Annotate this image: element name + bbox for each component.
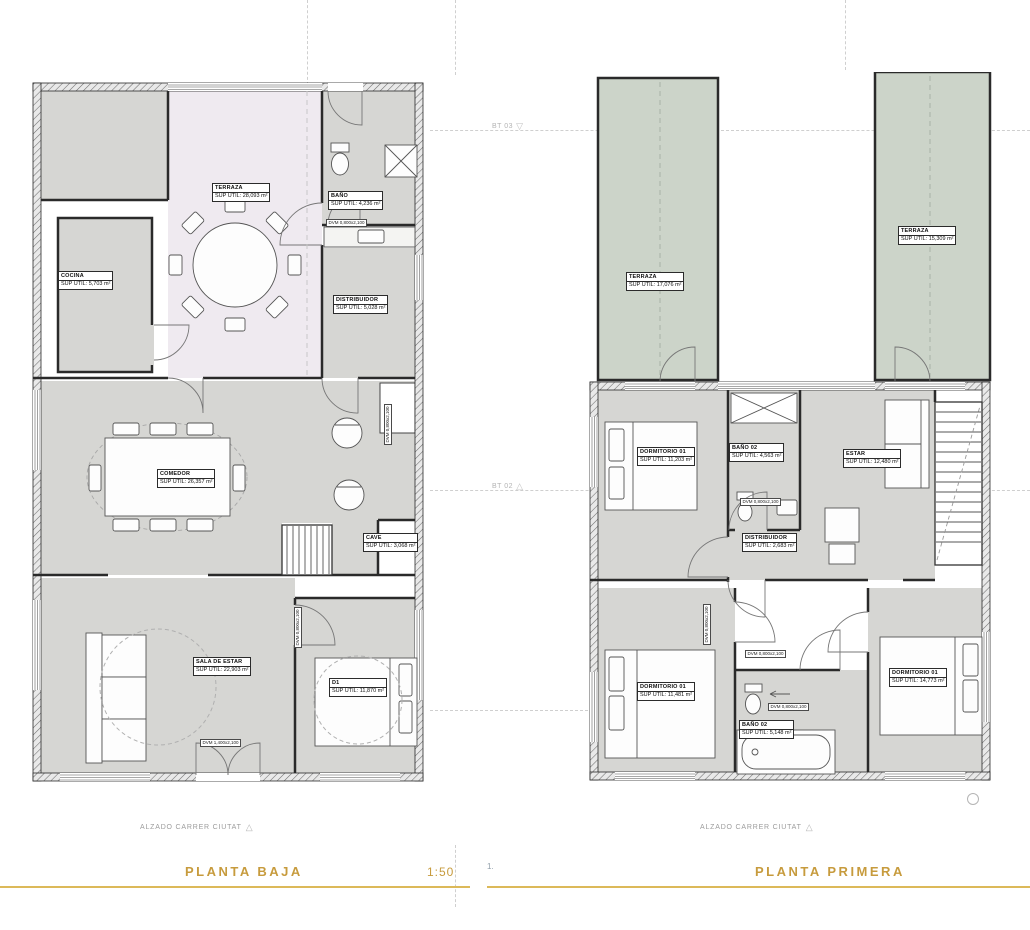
room-area: SUP ÚTIL: 4,236 m²: [329, 201, 382, 209]
room-name: BAÑO 02: [740, 721, 793, 730]
room-label-distribuidor-p1: DISTRIBUIDOR SUP ÚTIL: 2,683 m²: [742, 533, 797, 552]
room-area: SUP ÚTIL: 5,703 m²: [59, 281, 112, 289]
construction-line: [430, 710, 588, 711]
plan-title-planta-baja: PLANTA BAJA: [185, 864, 303, 879]
room-area: SUP ÚTIL: 3,068 m²: [364, 543, 417, 551]
room-area: SUP ÚTIL: 15,309 m²: [899, 236, 955, 244]
room-name: D1: [330, 679, 386, 688]
alzado-annotation-right: ALZADO CARRER CIUTAT △: [700, 822, 813, 833]
room-label-cave: CAVE SUP ÚTIL: 3,068 m²: [363, 533, 418, 552]
stairs: [282, 525, 332, 575]
toilet: [745, 684, 762, 714]
room-label-d1: D1 SUP ÚTIL: 11,870 m²: [329, 678, 387, 697]
construction-line: [455, 0, 456, 75]
room-name: CAVE: [364, 534, 417, 543]
room-label-cocina: COCINA SUP ÚTIL: 5,703 m²: [58, 271, 113, 290]
door-tag: DVM 0,800x2,100: [384, 404, 392, 445]
door-tag: DVM 1,400x2,100: [200, 739, 241, 747]
room-label-comedor: COMEDOR SUP ÚTIL: 26,357 m²: [157, 469, 215, 488]
room-label-terraza-2: TERRAZA SUP ÚTIL: 15,309 m²: [898, 226, 956, 245]
room-label-terraza: TERRAZA SUP ÚTIL: 28,093 m²: [212, 183, 270, 202]
sheet-index: 1.: [487, 862, 494, 871]
room-area: SUP ÚTIL: 5,148 m²: [740, 730, 793, 738]
room-area: SUP ÚTIL: 5,028 m²: [334, 305, 387, 313]
triangle-up-icon: △: [516, 481, 523, 492]
cocina-door-gap: [149, 325, 154, 365]
room-area: SUP ÚTIL: 11,481 m²: [638, 692, 694, 700]
door-tag: DVM 0,800x2,100: [294, 607, 302, 648]
room-area: SUP ÚTIL: 22,903 m²: [194, 667, 250, 675]
door-tag: DVM 0,800x2,100: [326, 219, 367, 227]
room-label-terraza-1: TERRAZA SUP ÚTIL: 17,076 m²: [626, 272, 684, 291]
room-area: SUP ÚTIL: 12,480 m²: [844, 459, 900, 467]
alzado-label: ALZADO CARRER CIUTAT: [700, 824, 802, 831]
room-name: COCINA: [59, 272, 112, 281]
room-area: SUP ÚTIL: 28,093 m²: [213, 193, 269, 201]
room-label-bano-bottom: BAÑO 02 SUP ÚTIL: 5,148 m²: [739, 720, 794, 739]
construction-line: [455, 845, 456, 907]
room-name: BAÑO 02: [730, 444, 783, 453]
bed: [605, 422, 697, 510]
room-area: SUP ÚTIL: 2,683 m²: [743, 543, 796, 551]
room-name: TERRAZA: [627, 273, 683, 282]
room-name: TERRAZA: [213, 184, 269, 193]
level-marker-label: BT 03: [492, 123, 513, 130]
stairs: [935, 402, 982, 565]
room-label-dormitorio-br: DORMITORIO 01 SUP ÚTIL: 14,773 m²: [889, 668, 947, 687]
room-label-bano: BAÑO SUP ÚTIL: 4,236 m²: [328, 191, 383, 210]
room-area: SUP ÚTIL: 14,773 m²: [890, 678, 946, 686]
room-area: SUP ÚTIL: 4,563 m²: [730, 453, 783, 461]
room-name: BAÑO: [329, 192, 382, 201]
room-name: DISTRIBUIDOR: [334, 296, 387, 305]
room-name: COMEDOR: [158, 470, 214, 479]
room-name: DORMITORIO 01: [638, 683, 694, 692]
door-tag: DVM 0,800x2,100: [740, 498, 781, 506]
footer-rule-left: [0, 886, 470, 888]
room-name: DORMITORIO 01: [638, 448, 694, 457]
room-label-sala-de-estar: SALA DE ESTAR SUP ÚTIL: 22,903 m²: [193, 657, 251, 676]
room-name: DORMITORIO 01: [890, 669, 946, 678]
door-tag: DVM 0,800x2,100: [768, 703, 809, 711]
room-name: ESTAR: [844, 450, 900, 459]
scale-label: 1:50: [427, 865, 454, 879]
floor-plan-sheet: TERRAZA SUP ÚTIL: 28,093 m² COCINA SUP Ú…: [0, 0, 1030, 930]
alzado-annotation-left: ALZADO CARRER CIUTAT △: [140, 822, 253, 833]
triangle-icon: △: [806, 822, 814, 833]
room-label-dormitorio-tl: DORMITORIO 01 SUP ÚTIL: 11,203 m²: [637, 447, 695, 466]
datum-marker: [967, 793, 979, 805]
footer-rule-right: [487, 886, 1030, 888]
room-label-distribuidor: DISTRIBUIDOR SUP ÚTIL: 5,028 m²: [333, 295, 388, 314]
room-name: SALA DE ESTAR: [194, 658, 250, 667]
room-area: SUP ÚTIL: 11,870 m²: [330, 688, 386, 696]
triangle-down-icon: ▽: [516, 121, 523, 132]
room-label-bano-top: BAÑO 02 SUP ÚTIL: 4,563 m²: [729, 443, 784, 462]
alzado-label: ALZADO CARRER CIUTAT: [140, 824, 242, 831]
level-marker-bt03: BT 03 ▽: [492, 121, 523, 132]
room-area: SUP ÚTIL: 26,357 m²: [158, 479, 214, 487]
level-marker-bt02: BT 02 △: [492, 481, 523, 492]
bed: [605, 650, 715, 758]
door-tag: DVM 0,800x2,100: [745, 650, 786, 658]
door-tag: DVM 0,800x2,100: [703, 604, 711, 645]
room-label-estar: ESTAR SUP ÚTIL: 12,480 m²: [843, 449, 901, 468]
construction-line: [845, 0, 846, 70]
construction-line: [307, 0, 308, 85]
level-marker-label: BT 02: [492, 483, 513, 490]
room-area: SUP ÚTIL: 11,203 m²: [638, 457, 694, 465]
room-label-dormitorio-bl: DORMITORIO 01 SUP ÚTIL: 11,481 m²: [637, 682, 695, 701]
sofa: [86, 633, 146, 763]
shower: [731, 393, 797, 423]
room-area: SUP ÚTIL: 17,076 m²: [627, 282, 683, 290]
triangle-icon: △: [246, 822, 254, 833]
room-name: DISTRIBUIDOR: [743, 534, 796, 543]
plan-title-planta-primera: PLANTA PRIMERA: [755, 864, 905, 879]
room-name: TERRAZA: [899, 227, 955, 236]
